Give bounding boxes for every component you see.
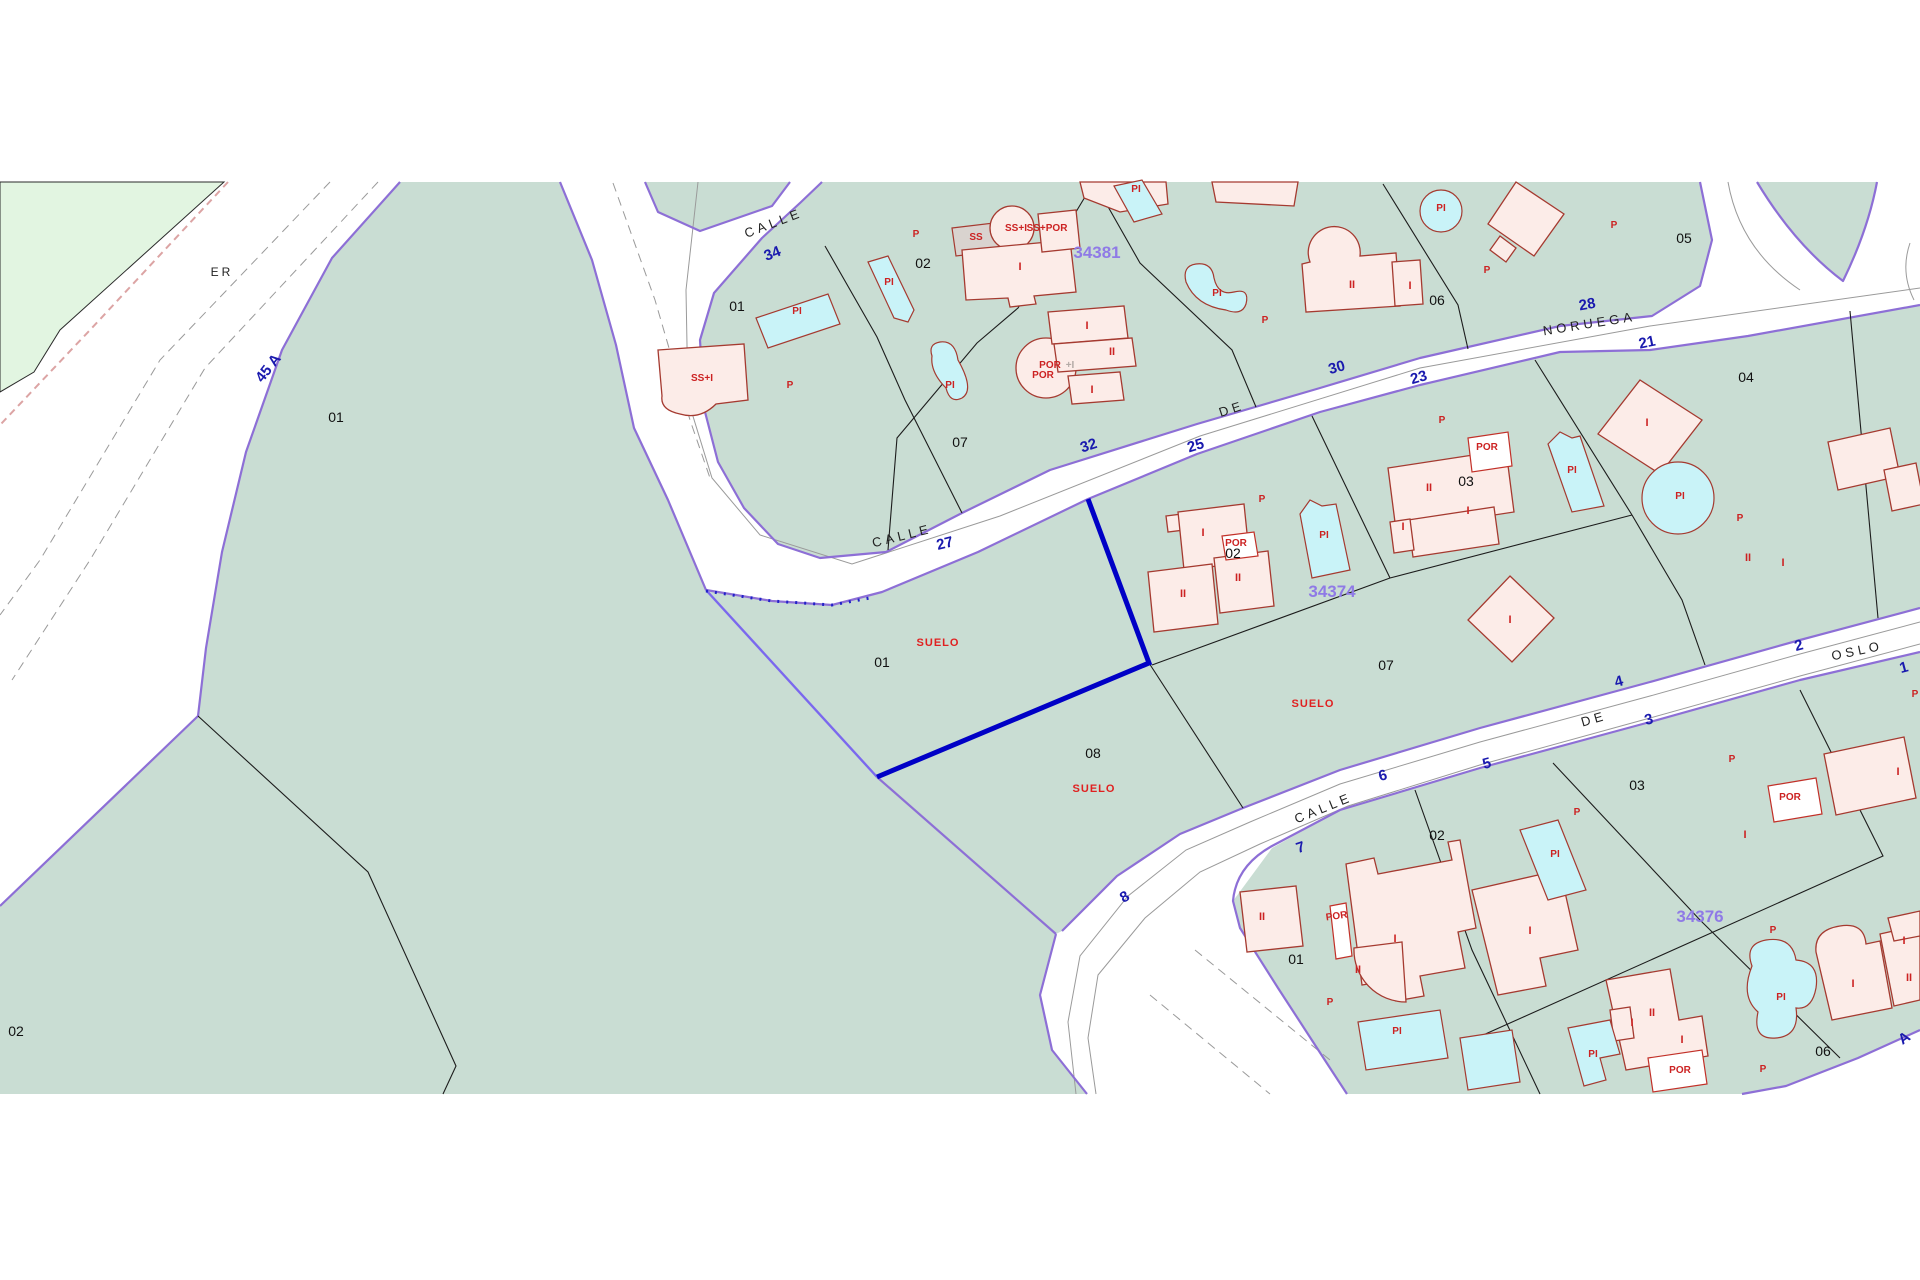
building-mark-label: P xyxy=(1912,689,1919,700)
building-mark-label: POR xyxy=(1032,370,1054,381)
building-mark-label: PI xyxy=(1212,288,1222,299)
building-mark-label: PI xyxy=(1776,992,1786,1003)
floor-count-label: II xyxy=(1745,552,1751,564)
building-mark-label: PI xyxy=(884,277,894,288)
floor-count-label: I xyxy=(1408,280,1411,292)
building-mark-label: PI xyxy=(1319,530,1329,541)
street-number-label: 6 xyxy=(1377,766,1389,785)
floor-count-label: I xyxy=(1466,505,1469,517)
parcel-number-label: 02 xyxy=(915,255,931,271)
building-mark-label: PI xyxy=(1550,849,1560,860)
parcel-number-label: 01 xyxy=(1288,951,1304,967)
building-mark-label: PI xyxy=(945,380,955,391)
parcel-number-label: 07 xyxy=(952,434,968,450)
floor-count-label: II xyxy=(1906,972,1912,984)
building-mark-label: PI xyxy=(1131,184,1141,195)
building-mark-label: P xyxy=(787,380,794,391)
building-mark-label: P xyxy=(1737,513,1744,524)
floor-count-label: I xyxy=(1645,417,1648,429)
floor-count-label: I xyxy=(1781,557,1784,569)
street-number-label: 21 xyxy=(1637,333,1657,353)
parcel-number-label: 07 xyxy=(1378,657,1394,673)
parcel-number-label: 02 xyxy=(1429,827,1445,843)
parcel-number-label: 03 xyxy=(1629,777,1645,793)
floor-count-label: II xyxy=(1355,964,1361,976)
building-mark-label: SS+I xyxy=(691,373,713,384)
land-use-label: SUELO xyxy=(917,637,960,649)
building-mark-label: POR xyxy=(1225,538,1247,549)
floor-count-label: I xyxy=(1085,320,1088,332)
building-mark-label: POR xyxy=(1779,792,1801,803)
parcel-number-label: 08 xyxy=(1085,745,1101,761)
building-mark-label: PI xyxy=(1436,203,1446,214)
floor-count-label: I xyxy=(1508,614,1511,626)
floor-count-label: I xyxy=(1090,384,1093,396)
building-mark-label: POR xyxy=(1669,1065,1691,1076)
parcel-number-label: 06 xyxy=(1429,292,1445,308)
building-mark-label: SS+I xyxy=(1005,223,1027,234)
parcel-number-label: 01 xyxy=(874,654,890,670)
building-mark-label: PI xyxy=(1392,1026,1402,1037)
building-mark-label: P xyxy=(1760,1064,1767,1075)
parcel-number-label: 05 xyxy=(1676,230,1692,246)
floor-count-label: I xyxy=(1680,1034,1683,1046)
building-mark-label: P xyxy=(1327,997,1334,1008)
floor-count-label: II xyxy=(1235,572,1241,584)
floor-count-label: I xyxy=(1630,1017,1633,1029)
building-mark-label: P xyxy=(1259,494,1266,505)
building-mark-label: P xyxy=(1439,415,1446,426)
block-code-label: 34381 xyxy=(1073,243,1120,262)
floor-count-label: I xyxy=(1528,925,1531,937)
building-mark-label: P xyxy=(1484,265,1491,276)
building-mark-label: SS xyxy=(969,232,983,243)
road-island-wedge xyxy=(1757,182,1877,281)
building-mark-label: P xyxy=(1262,315,1269,326)
building-mark-label: P xyxy=(913,229,920,240)
floor-count-label: I xyxy=(1851,978,1854,990)
cadastral-map[interactable]: CALLEDENORUEGACALLECALLEDEOSLOER34323028… xyxy=(0,0,1920,1280)
building-mark-label: P xyxy=(1770,925,1777,936)
floor-count-label: II xyxy=(1349,279,1355,291)
building-mark-label: PI xyxy=(1675,491,1685,502)
floor-count-label: II xyxy=(1426,482,1432,494)
land-use-label: SUELO xyxy=(1292,698,1335,710)
building-mark-label: POR xyxy=(1039,360,1061,371)
block-code-label: 34376 xyxy=(1676,907,1723,926)
parcel-number-label: 02 xyxy=(8,1023,24,1039)
parcel-number-label: 06 xyxy=(1815,1043,1831,1059)
floor-count-label: I xyxy=(1896,766,1899,778)
floor-count-label: I xyxy=(1743,829,1746,841)
building-mark-label: PI xyxy=(1567,465,1577,476)
floor-count-label: I xyxy=(1393,933,1396,945)
parcel-number-label: 01 xyxy=(328,409,344,425)
street-number-label: 8 xyxy=(1117,888,1133,907)
street-name-label: OSLO xyxy=(1830,638,1884,664)
floor-count-label: I xyxy=(1401,521,1404,533)
building-mark-label: P xyxy=(1611,220,1618,231)
floor-count-label: I xyxy=(1018,261,1021,273)
floor-count-label: II xyxy=(1180,588,1186,600)
building-mark-label: PI xyxy=(1588,1049,1598,1060)
block-code-label: 34374 xyxy=(1308,582,1356,601)
building-mark-label: POR xyxy=(1476,442,1498,453)
building-mark-label: P xyxy=(1574,807,1581,818)
building-mark-label: SS+POR xyxy=(1027,223,1069,234)
building-mark-gray-label: +I xyxy=(1066,360,1075,371)
floor-count-label: II xyxy=(1109,346,1115,358)
street-name-label: DE xyxy=(1579,708,1608,730)
street-name-label: ER xyxy=(211,265,234,279)
street-number-label: 27 xyxy=(935,533,955,554)
building-mark-label: P xyxy=(1729,754,1736,765)
floor-count-label: I xyxy=(1201,527,1204,539)
street-number-label: 28 xyxy=(1578,295,1597,315)
parcel-number-label: 03 xyxy=(1458,473,1474,489)
greenery-area xyxy=(0,182,224,392)
land-use-label: SUELO xyxy=(1073,783,1116,795)
parcel-number-label: 01 xyxy=(729,298,745,314)
floor-count-label: I xyxy=(1902,935,1905,947)
floor-count-label: II xyxy=(1259,911,1265,923)
floor-count-label: II xyxy=(1649,1007,1655,1019)
building-mark-label: PI xyxy=(792,306,802,317)
parcel-number-label: 04 xyxy=(1738,369,1754,385)
